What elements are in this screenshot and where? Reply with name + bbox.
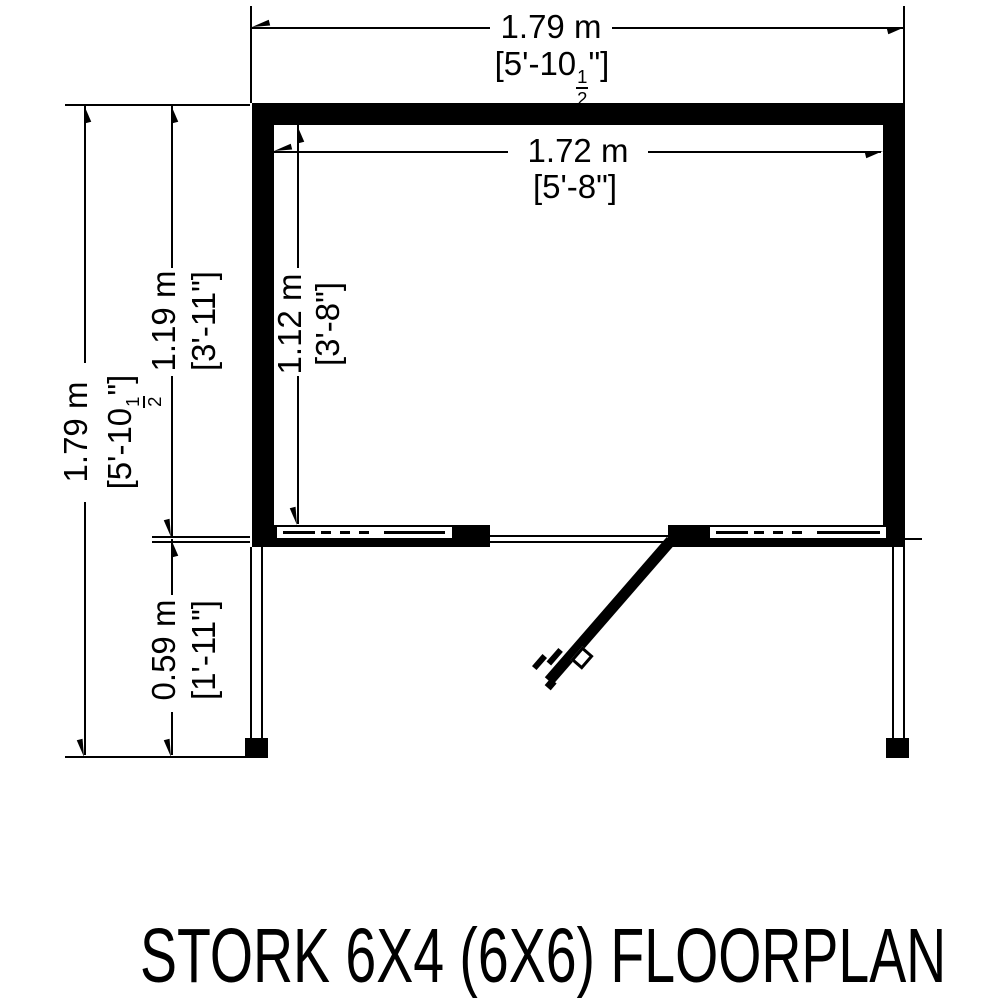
door-handle [547,648,563,666]
extension-line [250,6,252,103]
door-threshold-line [490,535,668,537]
dim-label-depth-overall-imperial: [5'-1012"] [102,282,138,582]
porch-rail-right [892,547,894,740]
dim-arrow [294,124,304,143]
dim-label-depth-main-metric: 1.19 m [146,171,182,471]
door-handle [532,654,547,670]
dim-arrow [168,104,178,123]
porch-rail-left [261,547,263,740]
door-handle [571,646,594,669]
dim-label-depth-porch-imperial: [1'-11"] [186,500,222,800]
porch-rail-left [250,547,252,740]
window-right-glazing-dash [754,531,811,534]
extension-line [903,6,905,103]
porch-post-right [886,738,909,758]
window-right-glazing [716,531,748,534]
dim-label-depth-internal-imperial: [3'-8"] [310,174,346,474]
porch-post-left [245,738,268,758]
dim-label-depth-main-imperial: [3'-11"] [186,171,222,471]
floorplan-diagram: 1.79 m [5'-1012"] 1.72 m [5'-8"] 1.79 m … [0,0,1000,1000]
page-title: STORK 6X4 (6X6) FLOORPLAN [140,918,860,995]
dim-label-width-internal-metric: 1.72 m [428,133,728,169]
dim-label-depth-porch-metric: 0.59 m [146,500,182,800]
window-left-glazing-dash [321,531,378,534]
dim-label-depth-overall-metric: 1.79 m [58,282,94,582]
extension-line [905,538,922,540]
door-handle [545,678,557,690]
window-right-glazing [817,531,880,534]
dim-arrow [81,104,91,123]
door-threshold-line [490,541,668,543]
dim-label-width-internal-imperial: [5'-8"] [425,169,725,205]
window-left-glazing [283,531,315,534]
window-left-glazing [384,531,445,534]
dim-arrow [865,148,884,158]
dim-label-depth-internal-metric: 1.12 m [272,174,308,474]
door-leaf [545,537,675,685]
right-wall [883,103,905,547]
dim-label-width-overall-imperial: [5'-1012"] [402,46,702,82]
dim-label-width-overall-metric: 1.79 m [401,9,701,45]
porch-rail-right [903,547,905,740]
extension-line [65,104,250,106]
